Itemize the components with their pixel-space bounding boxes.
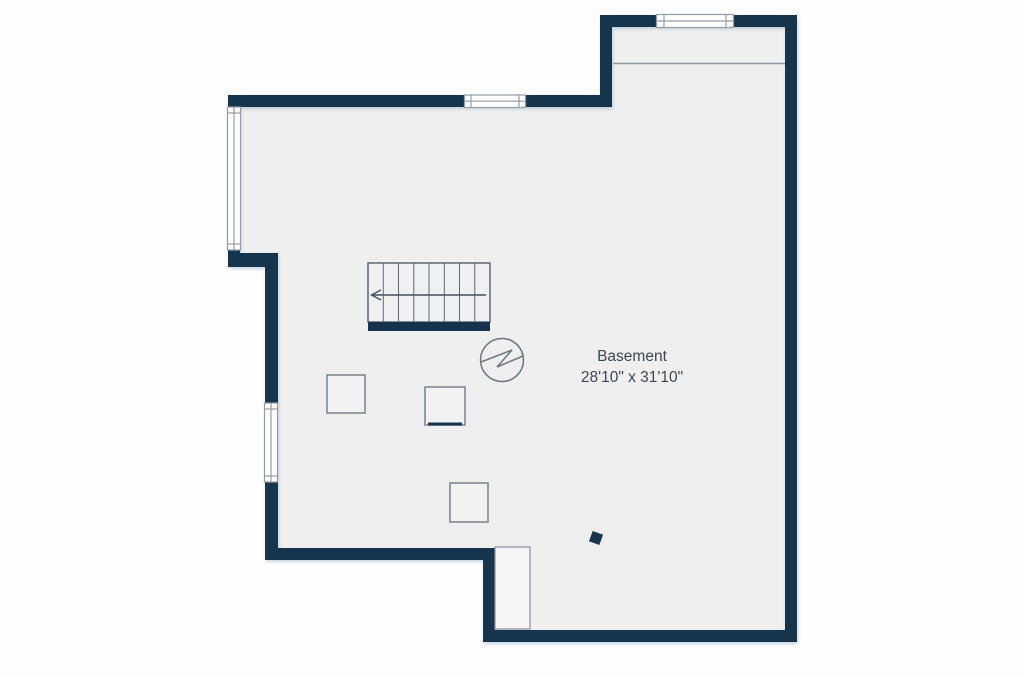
floor-area <box>240 27 785 630</box>
utility-square-2 <box>425 387 465 425</box>
window-bumpout-top <box>657 15 734 28</box>
stair-base-wall <box>368 322 490 331</box>
staircase <box>368 263 490 331</box>
window-left-lower <box>265 403 278 482</box>
floorplan-canvas: Basement 28'10" x 31'10" <box>0 0 1024 677</box>
utility-square-3 <box>450 483 488 522</box>
window-main-top <box>465 95 526 108</box>
room-name-label: Basement <box>597 348 667 365</box>
utility-square-1 <box>327 375 365 413</box>
window-left-upper <box>228 107 241 250</box>
room-dimensions-label: 28'10" x 31'10" <box>581 369 683 386</box>
stair-landing <box>495 547 530 629</box>
floorplan-drawing: Basement 28'10" x 31'10" <box>0 0 1024 677</box>
